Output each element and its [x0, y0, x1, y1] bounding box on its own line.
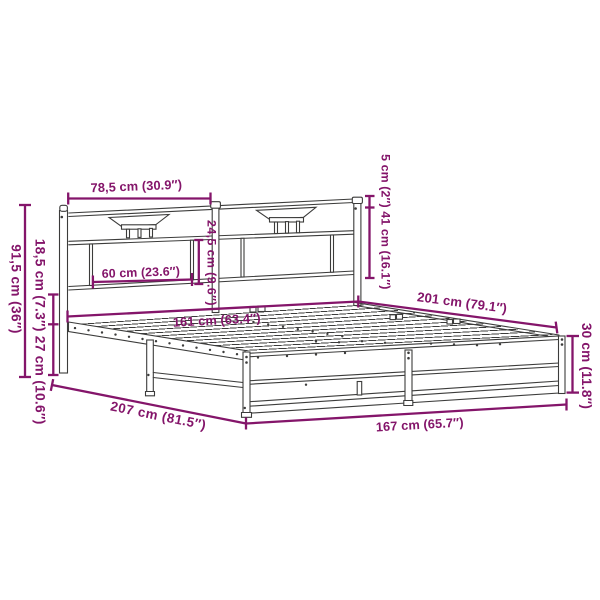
svg-text:167 cm (65.7″): 167 cm (65.7″): [375, 415, 464, 435]
svg-text:78,5 cm (30.9″): 78,5 cm (30.9″): [90, 177, 182, 196]
svg-text:60 cm (23.6″): 60 cm (23.6″): [102, 264, 181, 281]
svg-text:24,5 cm (9.6″): 24,5 cm (9.6″): [205, 220, 219, 306]
svg-text:91,5 cm (36″): 91,5 cm (36″): [9, 244, 24, 334]
svg-text:18,5 cm (7.3″) 27 cm (10.6″): 18,5 cm (7.3″) 27 cm (10.6″): [33, 239, 48, 425]
svg-text:30 cm (11.8″): 30 cm (11.8″): [579, 323, 594, 409]
svg-text:5 cm (2″) 41 cm (16.1″): 5 cm (2″) 41 cm (16.1″): [379, 154, 393, 289]
svg-text:207 cm (81.5″): 207 cm (81.5″): [109, 399, 208, 433]
